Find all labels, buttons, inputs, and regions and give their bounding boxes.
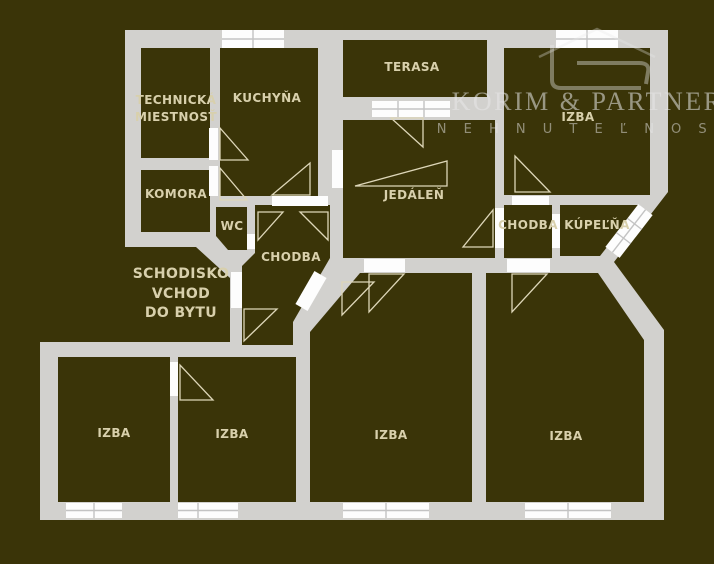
label-komora: KOMORA	[145, 187, 207, 201]
window-izba2-bottom	[178, 503, 238, 518]
label-technicka-line2: MIESTNOSŤ	[135, 109, 218, 124]
door-chodba-jedalen-top	[300, 196, 328, 206]
room-komora	[141, 170, 210, 232]
door-jedalen-izba3	[364, 259, 405, 272]
label-schodisko-line2: VCHOD	[152, 286, 210, 302]
label-kuchyna: KUCHYŇA	[233, 90, 302, 105]
window-kuchyna-top	[222, 30, 284, 48]
label-wc: WC	[221, 219, 244, 233]
brand-name: KORIM & PARTNERS	[452, 87, 714, 116]
label-chodba-right: CHODBA	[498, 218, 558, 232]
label-technicka-line1: TECHNICKÁ	[136, 92, 217, 107]
room-kuchyna	[220, 48, 318, 196]
door-izba1-izba2	[170, 362, 178, 396]
door-technicka	[209, 128, 218, 160]
label-izba-4: IZBA	[549, 429, 583, 443]
label-izba-3: IZBA	[374, 428, 408, 442]
door-chodba-izba4	[507, 259, 550, 272]
room-izba-3	[310, 273, 472, 502]
window-izba1-bottom	[66, 503, 122, 518]
floor-plan-image: TECHNICKÁ MIESTNOSŤ KUCHYŇA TERASA IZBA …	[0, 0, 714, 564]
label-jedalen: JEDÁLEŇ	[383, 187, 445, 202]
window-izba4-bottom	[525, 503, 611, 518]
label-chodba-center: CHODBA	[261, 250, 321, 264]
label-terasa: TERASA	[384, 60, 440, 74]
door-kuchyna-chodba	[272, 196, 302, 206]
floor-plan-canvas: TECHNICKÁ MIESTNOSŤ KUCHYŇA TERASA IZBA …	[0, 0, 714, 564]
label-izba-2: IZBA	[215, 427, 249, 441]
door-entrance	[231, 272, 242, 308]
label-schodisko-line1: SCHODISKO	[133, 266, 230, 282]
label-kupelna: KÚPEĽŇA	[564, 217, 630, 232]
label-izba-1: IZBA	[97, 426, 131, 440]
door-komora	[209, 166, 218, 196]
door-jedalen-left	[332, 150, 343, 188]
brand-subtitle: N E H N U T E Ľ N O S T I	[437, 122, 714, 137]
door-chodba-izba-top	[512, 196, 549, 205]
room-izba-4	[486, 273, 644, 502]
window-izba3-bottom	[343, 503, 429, 518]
door-wc	[247, 234, 255, 249]
label-schodisko-line3: DO BYTU	[145, 305, 217, 321]
window-terasa-jedalen	[372, 101, 450, 117]
